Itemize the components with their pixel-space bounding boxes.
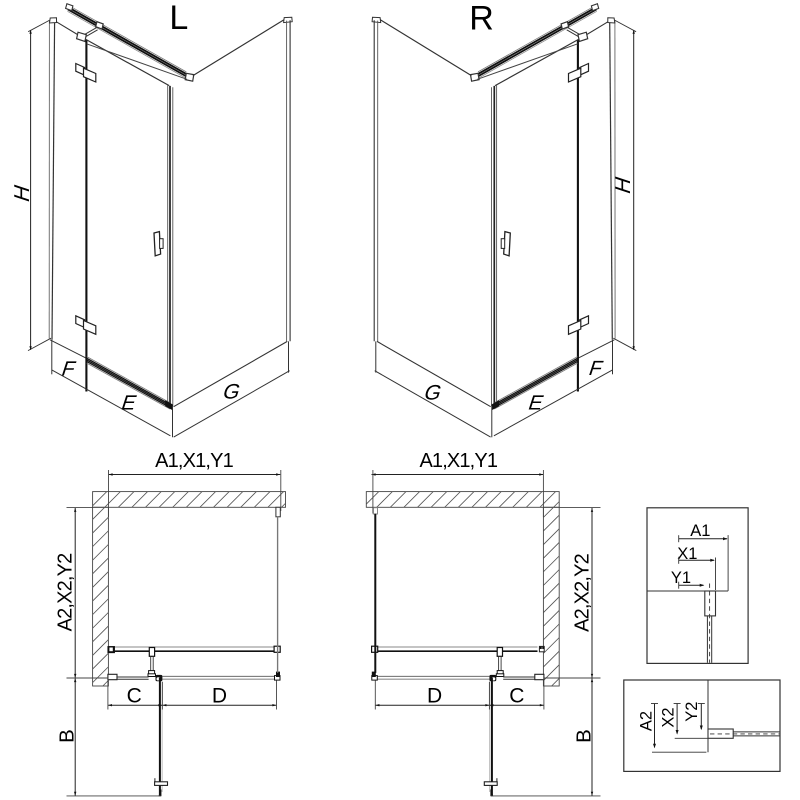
svg-text:C: C	[509, 685, 524, 708]
svg-text:D: D	[427, 685, 442, 708]
svg-text:Y1: Y1	[671, 569, 691, 587]
svg-text:C: C	[127, 685, 142, 708]
svg-text:A2: A2	[637, 711, 655, 731]
svg-text:D: D	[212, 685, 227, 708]
svg-text:A2,X2,Y2: A2,X2,Y2	[571, 553, 593, 631]
svg-text:A2,X2,Y2: A2,X2,Y2	[55, 553, 77, 631]
svg-text:R: R	[469, 0, 494, 38]
svg-text:Y2: Y2	[683, 702, 701, 722]
svg-text:L: L	[169, 0, 188, 37]
svg-text:A1,X1,Y1: A1,X1,Y1	[419, 450, 497, 472]
svg-text:A1: A1	[690, 522, 710, 540]
svg-text:X2: X2	[660, 707, 678, 727]
svg-text:A1,X1,Y1: A1,X1,Y1	[155, 450, 233, 472]
